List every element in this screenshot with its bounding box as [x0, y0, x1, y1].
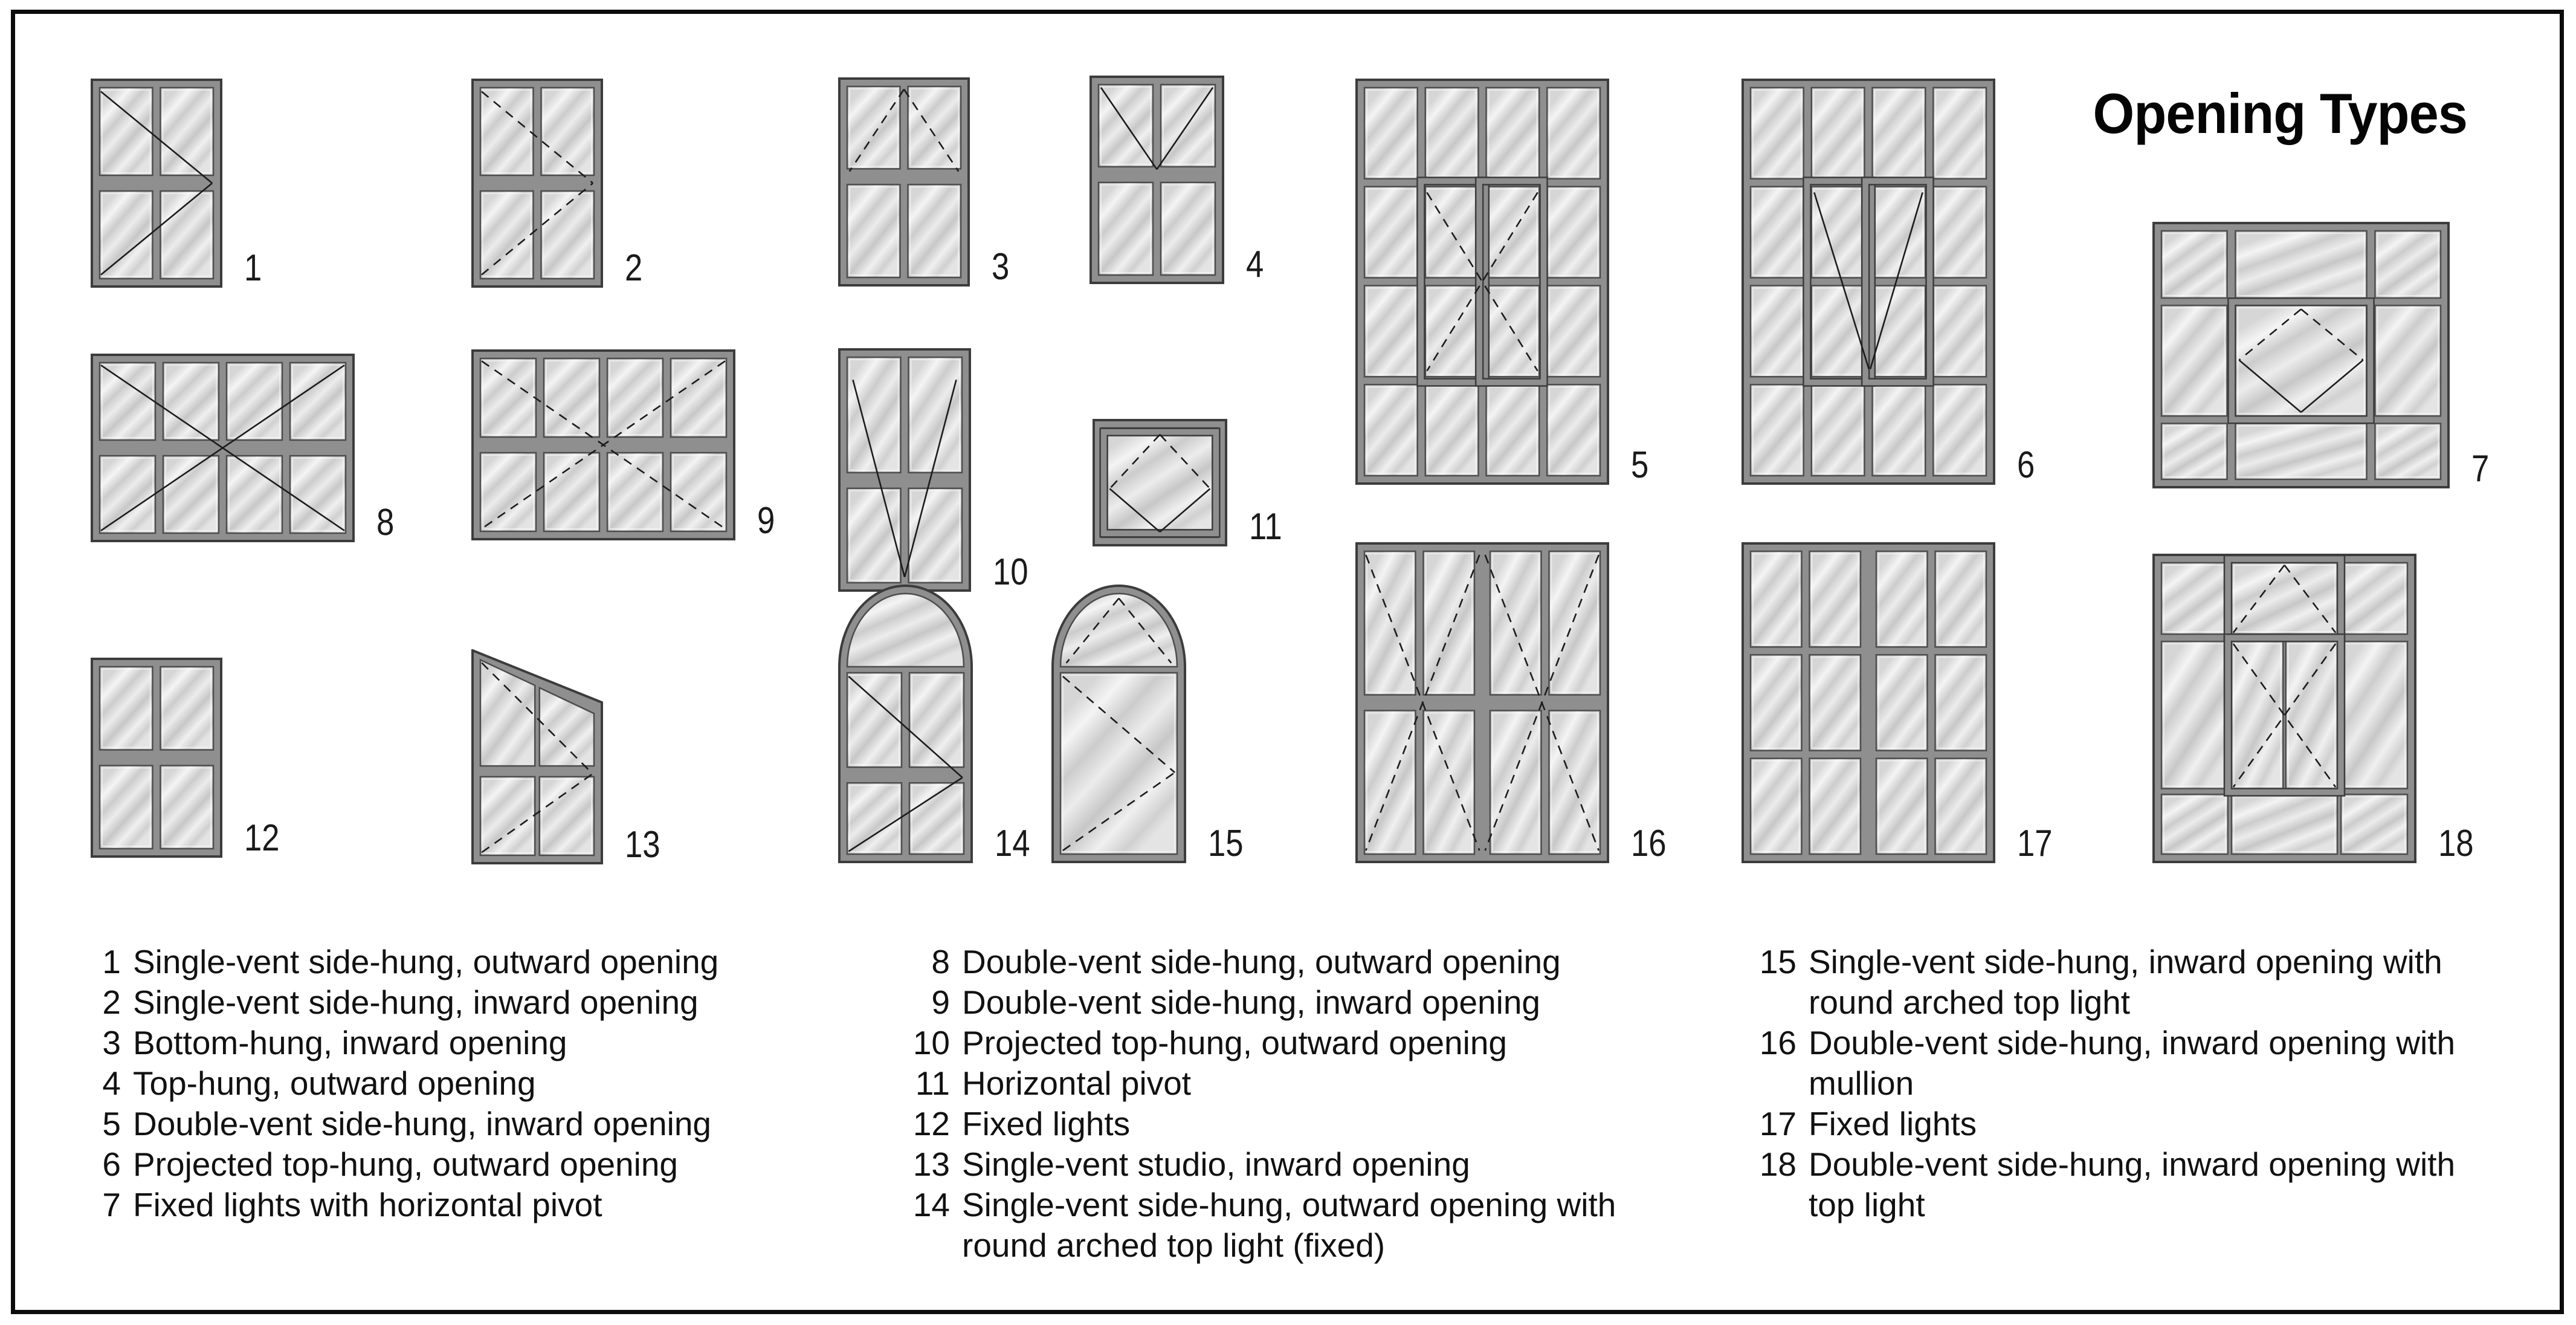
legend-item: 18Double-vent side-hung, inward opening … — [1754, 1144, 2455, 1225]
legend-item-number: 14 — [908, 1185, 950, 1266]
legend-item-text: Fixed lights — [1809, 1104, 1977, 1144]
legend-item-text: Double-vent side-hung, inward opening wi… — [1809, 1144, 2455, 1225]
legend-item-text: Single-vent studio, inward opening — [962, 1144, 1470, 1185]
window-diagram-18: 18 — [2152, 554, 2416, 863]
window-diagram-15: 15 — [1051, 583, 1186, 863]
page-title: Opening Types — [2093, 81, 2467, 146]
window-number-label: 4 — [1246, 245, 1264, 284]
legend-item-text: Fixed lights — [962, 1104, 1130, 1144]
legend-item-number: 13 — [908, 1144, 950, 1185]
window-number-label: 17 — [2017, 824, 2053, 863]
legend-item-number: 4 — [79, 1063, 121, 1104]
legend-item-text: Projected top-hung, outward opening — [133, 1144, 678, 1185]
legend-item-text: Double-vent side-hung, outward opening — [962, 942, 1561, 982]
window-number-label: 1 — [244, 249, 262, 288]
window-number-label: 8 — [376, 504, 394, 542]
legend-item-text: Fixed lights with horizontal pivot — [133, 1185, 602, 1225]
legend-item: 5Double-vent side-hung, inward opening — [79, 1104, 718, 1144]
window-diagram-10: 10 — [838, 348, 971, 592]
legend-item-number: 3 — [79, 1023, 121, 1063]
legend-item: 6Projected top-hung, outward opening — [79, 1144, 718, 1185]
legend-item-number: 9 — [908, 982, 950, 1023]
window-diagram-7: 7 — [2152, 222, 2450, 488]
window-number-label: 13 — [625, 826, 660, 864]
window-number-label: 9 — [757, 502, 775, 540]
legend-item-number: 6 — [79, 1144, 121, 1185]
window-number-label: 18 — [2438, 824, 2474, 863]
legend-item-text: Single-vent side-hung, inward opening — [133, 982, 699, 1023]
legend-item: 2Single-vent side-hung, inward opening — [79, 982, 718, 1023]
legend-item-number: 15 — [1754, 942, 1796, 1023]
legend-item-text: Double-vent side-hung, inward opening wi… — [1809, 1023, 2455, 1104]
legend-item-text: Single-vent side-hung, outward opening w… — [962, 1185, 1616, 1266]
window-diagram-3: 3 — [838, 77, 970, 287]
legend-item-number: 8 — [908, 942, 950, 982]
legend-column-1: 1Single-vent side-hung, outward opening2… — [79, 942, 718, 1225]
legend-column-2: 8Double-vent side-hung, outward opening9… — [908, 942, 1616, 1266]
legend-item-text: Double-vent side-hung, inward opening — [133, 1104, 711, 1144]
window-number-label: 14 — [995, 824, 1030, 863]
window-diagram-9: 9 — [471, 349, 735, 540]
window-diagram-4: 4 — [1089, 76, 1224, 284]
window-diagram-1: 1 — [91, 79, 222, 288]
legend-item-number: 7 — [79, 1185, 121, 1225]
legend-item-number: 12 — [908, 1104, 950, 1144]
legend-item-number: 2 — [79, 982, 121, 1023]
legend-item: 11Horizontal pivot — [908, 1063, 1616, 1104]
legend-item-text: Single-vent side-hung, inward opening wi… — [1809, 942, 2442, 1023]
legend-item: 8Double-vent side-hung, outward opening — [908, 942, 1616, 982]
legend-item-number: 1 — [79, 942, 121, 982]
window-diagram-8: 8 — [91, 354, 355, 542]
legend-item-text: Horizontal pivot — [962, 1063, 1191, 1104]
window-diagram-16: 16 — [1355, 542, 1609, 863]
window-diagram-11: 11 — [1093, 419, 1227, 546]
window-number-label: 16 — [1631, 824, 1667, 863]
legend-item-number: 16 — [1754, 1023, 1796, 1104]
legend-item: 7Fixed lights with horizontal pivot — [79, 1185, 718, 1225]
legend-item: 15Single-vent side-hung, inward opening … — [1754, 942, 2455, 1023]
legend-item-text: Double-vent side-hung, inward opening — [962, 982, 1540, 1023]
legend-item-number: 5 — [79, 1104, 121, 1144]
legend-item: 13Single-vent studio, inward opening — [908, 1144, 1616, 1185]
opening-types-diagram: Opening Types 12345678910111213141516171… — [0, 0, 2576, 1325]
legend-item: 9Double-vent side-hung, inward opening — [908, 982, 1616, 1023]
legend-item-text: Bottom-hung, inward opening — [133, 1023, 567, 1063]
legend-item-text: Top-hung, outward opening — [133, 1063, 536, 1104]
window-diagram-5: 5 — [1355, 79, 1609, 485]
window-diagram-2: 2 — [471, 79, 603, 288]
legend-item-text: Single-vent side-hung, outward opening — [133, 942, 718, 982]
legend-item: 14Single-vent side-hung, outward opening… — [908, 1185, 1616, 1266]
window-diagram-14: 14 — [838, 583, 973, 863]
window-number-label: 11 — [1249, 508, 1282, 546]
window-number-label: 5 — [1631, 446, 1648, 485]
legend-item-number: 11 — [908, 1063, 950, 1104]
window-number-label: 15 — [1208, 824, 1244, 863]
window-number-label: 2 — [625, 249, 642, 288]
window-number-label: 3 — [992, 248, 1009, 287]
window-diagram-12: 12 — [91, 658, 222, 858]
legend-item: 3Bottom-hung, inward opening — [79, 1023, 718, 1063]
legend-item: 17Fixed lights — [1754, 1104, 2455, 1144]
legend-item-number: 18 — [1754, 1144, 1796, 1225]
window-number-label: 7 — [2471, 450, 2489, 488]
legend-item: 12Fixed lights — [908, 1104, 1616, 1144]
legend-item: 16Double-vent side-hung, inward opening … — [1754, 1023, 2455, 1104]
legend-item-number: 17 — [1754, 1104, 1796, 1144]
window-diagram-6: 6 — [1742, 79, 1995, 485]
window-diagram-13: 13 — [471, 649, 603, 864]
window-number-label: 12 — [244, 819, 280, 858]
legend-item: 4Top-hung, outward opening — [79, 1063, 718, 1104]
legend-item-number: 10 — [908, 1023, 950, 1063]
legend-item: 10Projected top-hung, outward opening — [908, 1023, 1616, 1063]
legend-item-text: Projected top-hung, outward opening — [962, 1023, 1507, 1063]
window-number-label: 10 — [993, 553, 1028, 592]
legend-item: 1Single-vent side-hung, outward opening — [79, 942, 718, 982]
legend-column-3: 15Single-vent side-hung, inward opening … — [1754, 942, 2455, 1225]
window-number-label: 6 — [2017, 446, 2035, 485]
window-diagram-17: 17 — [1742, 542, 1995, 863]
